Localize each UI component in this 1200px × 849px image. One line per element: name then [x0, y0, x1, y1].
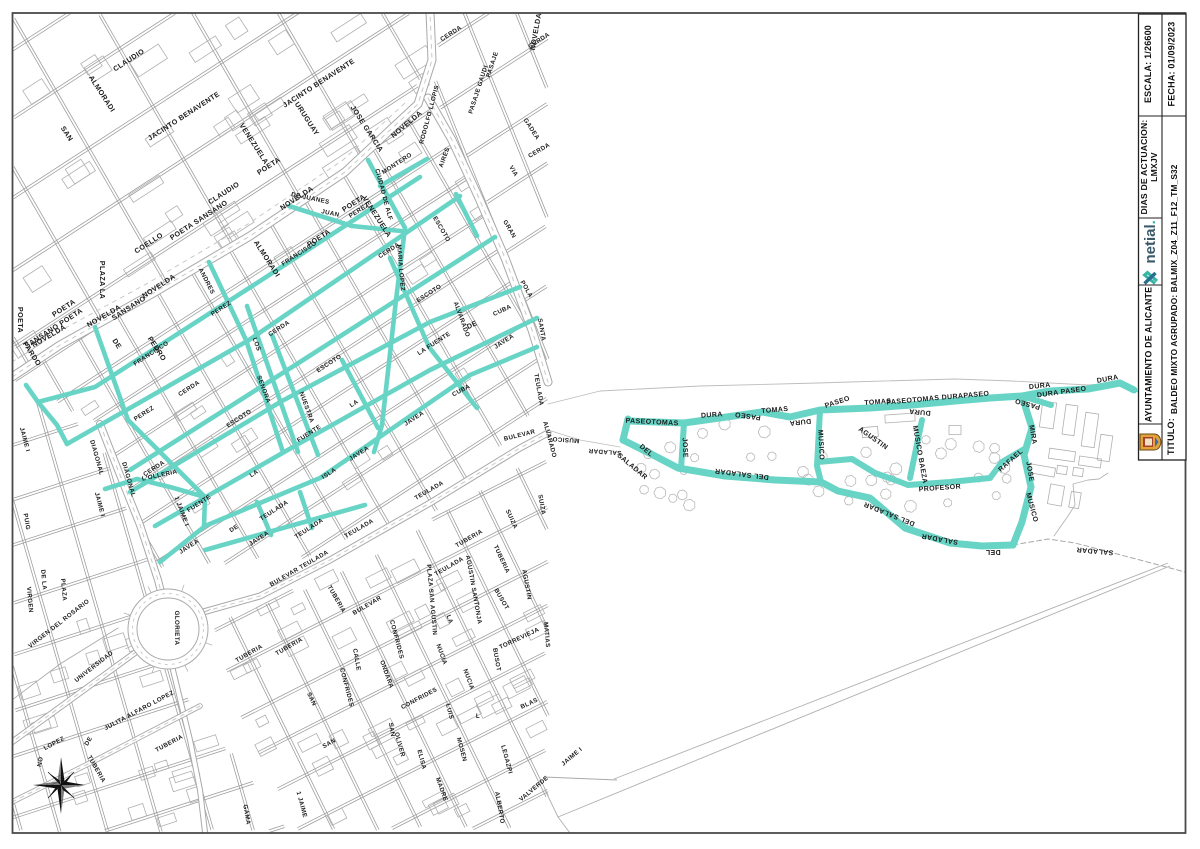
svg-text:LMXJV: LMXJV: [1149, 152, 1159, 182]
svg-text:GLORIETA: GLORIETA: [173, 611, 180, 646]
svg-text:PLAZA LA: PLAZA LA: [98, 261, 107, 299]
svg-text:POETA: POETA: [16, 307, 25, 333]
svg-text:DEL: DEL: [985, 548, 1001, 555]
svg-text:BALDEO MIXTO AGRUPADO: BALMIX_: BALDEO MIXTO AGRUPADO: BALMIX_Z04_Z11_F1…: [1169, 164, 1179, 414]
svg-text:L: L: [476, 713, 480, 720]
svg-text:AYUNTAMIENTO DE ALICANTE: AYUNTAMIENTO DE ALICANTE: [1144, 287, 1154, 422]
svg-text:DIAS DE ACTUACION:: DIAS DE ACTUACION:: [1139, 120, 1149, 215]
svg-text:FECHA: 01/09/2023: FECHA: 01/09/2023: [1167, 22, 1177, 107]
svg-text:TITULO:: TITULO:: [1166, 418, 1176, 455]
svg-text:ESCALA: 1/26600: ESCALA: 1/26600: [1143, 25, 1153, 103]
svg-text:netial.: netial.: [1142, 220, 1159, 263]
svg-text:JOSE: JOSE: [680, 438, 688, 459]
